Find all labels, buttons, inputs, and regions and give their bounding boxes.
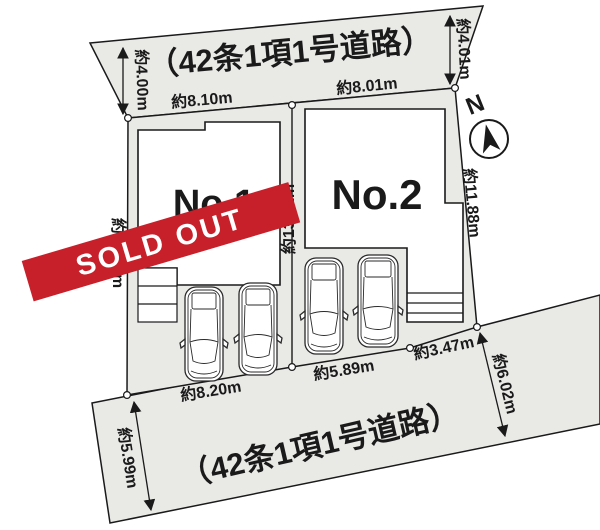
car-icon-1	[180, 287, 228, 381]
site-plan-svg: 約4.00m 約8.10m 約8.01m 約4.01m 約13.78m 約13.…	[0, 0, 600, 530]
car-icon-3	[300, 258, 348, 354]
site-plan-diagram: 約4.00m 約8.10m 約8.01m 約4.01m 約13.78m 約13.…	[0, 0, 600, 530]
steps-no1	[138, 268, 177, 322]
car-icon-4	[353, 255, 403, 347]
north-arrow-icon: N	[462, 89, 508, 158]
north-label: N	[462, 89, 488, 121]
car-icon-2	[234, 283, 282, 375]
lot-no2-label: No.2	[331, 171, 422, 218]
